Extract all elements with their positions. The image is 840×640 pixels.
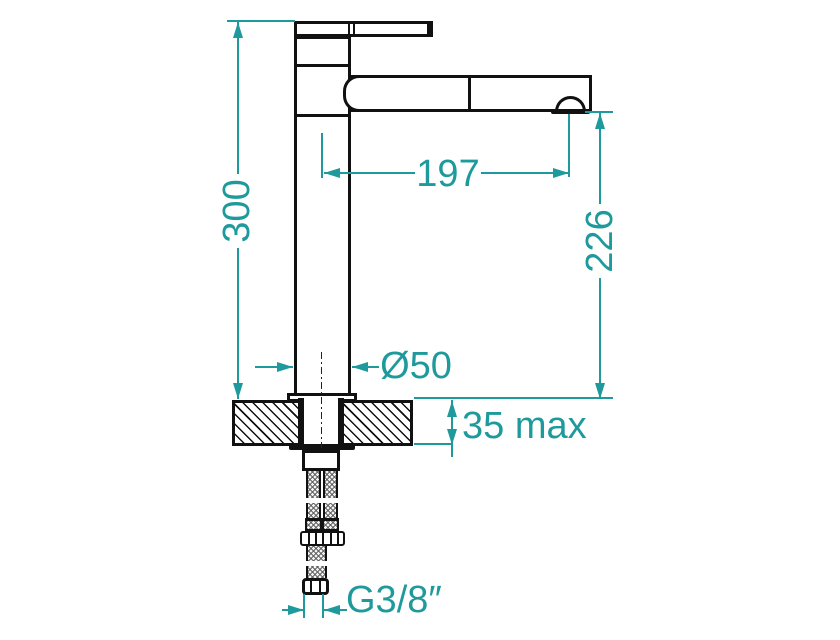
supply-hose-lower (306, 546, 327, 561)
ext-line-center-stub (321, 133, 323, 178)
hex-facet (330, 533, 332, 544)
supply-hose-lowest (306, 566, 327, 578)
handle-end-cap-line (427, 24, 430, 34)
handle-joint-line-1 (348, 24, 350, 34)
hex-facet (319, 581, 321, 592)
hose-ferrule-right (322, 518, 339, 532)
arrowhead-left (324, 168, 340, 178)
countertop-section-right (341, 400, 413, 446)
dim-label-spout-outlet-height: 226 (580, 204, 620, 278)
supply-hose-left-mid (306, 503, 321, 518)
ext-line-counter-top (414, 397, 613, 399)
arrowhead-up (233, 22, 243, 38)
supply-hose-right-mid (323, 503, 338, 518)
hex-facet (310, 581, 312, 592)
handle-joint-line-2 (353, 24, 355, 34)
dim-label-body-diameter: Ø50 (379, 347, 453, 385)
hex-facet (322, 533, 324, 544)
hex-nut-pair (300, 531, 345, 546)
hex-facet (337, 533, 339, 544)
arrowhead-right (277, 362, 293, 372)
mounting-nut (302, 450, 340, 471)
arrowhead-right (288, 605, 304, 615)
dim-label-supply-connection: G3/8″ (346, 580, 476, 620)
supply-hose-left-upper (306, 471, 321, 498)
supply-hose-right-upper (323, 471, 338, 498)
spout-joint-line (468, 78, 471, 109)
arrowhead-up (447, 401, 457, 417)
dim-label-overall-height: 300 (217, 174, 257, 248)
hose-ferrule-left (305, 518, 322, 532)
g38-hex-nut (302, 578, 329, 595)
hex-facet (308, 533, 310, 544)
arrowhead-down (447, 429, 457, 445)
axis-centerline (321, 352, 322, 448)
dim-label-deck-thickness: 35 max (462, 407, 602, 445)
arrowhead-right (553, 168, 569, 178)
countertop-section-left (232, 400, 302, 446)
body-joint-line-upper (296, 64, 349, 67)
dim-label-spout-reach: 197 (415, 155, 481, 193)
arrowhead-up (595, 113, 605, 129)
arrowhead-left (352, 362, 368, 372)
hex-facet (315, 533, 317, 544)
faucet-handle-lever (294, 21, 433, 37)
arrowhead-left (324, 605, 340, 615)
body-joint-line-lower (296, 114, 349, 117)
technical-drawing-canvas: 300 197 226 Ø50 35 max G3/8″ (0, 0, 840, 640)
arrowhead-down (233, 383, 243, 399)
